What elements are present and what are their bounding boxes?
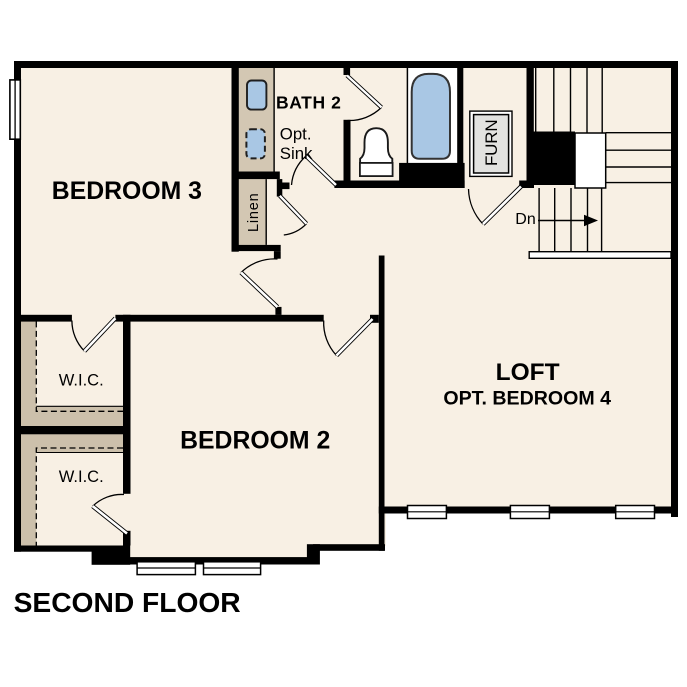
svg-text:W.I.C.: W.I.C. xyxy=(59,371,104,389)
svg-text:Sink: Sink xyxy=(280,144,313,163)
svg-text:W.I.C.: W.I.C. xyxy=(59,468,104,486)
svg-text:LOFT: LOFT xyxy=(496,359,560,386)
svg-text:BEDROOM 3: BEDROOM 3 xyxy=(52,178,202,205)
svg-text:Linen: Linen xyxy=(246,193,262,232)
svg-text:SECOND FLOOR: SECOND FLOOR xyxy=(14,586,241,618)
svg-text:Opt.: Opt. xyxy=(280,124,312,143)
svg-text:FURN: FURN xyxy=(482,120,501,166)
svg-text:BATH 2: BATH 2 xyxy=(276,92,342,112)
svg-text:Dn: Dn xyxy=(515,211,535,228)
svg-text:BEDROOM 2: BEDROOM 2 xyxy=(180,428,330,455)
svg-text:OPT. BEDROOM 4: OPT. BEDROOM 4 xyxy=(443,388,611,410)
